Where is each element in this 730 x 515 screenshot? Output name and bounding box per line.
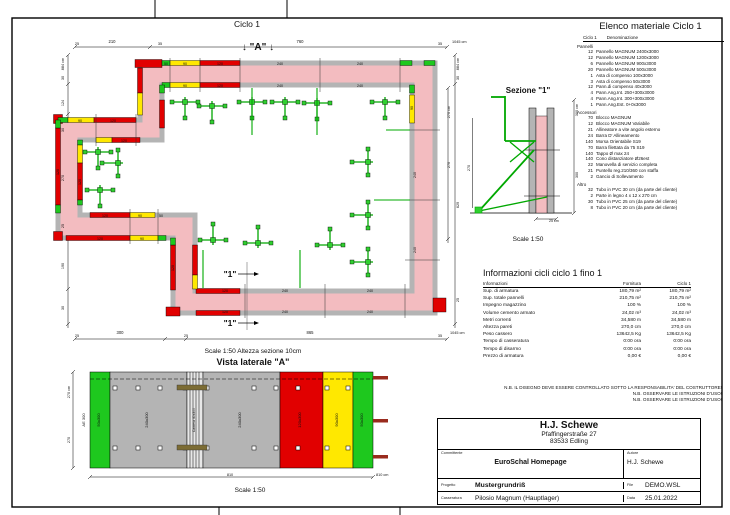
drawing-label: 240x300 xyxy=(144,412,149,428)
info-col-ciclo: Ciclo 1 xyxy=(641,281,691,286)
drawing-label: 240 xyxy=(357,84,363,88)
info-fornitura-value: 180,79 m² xyxy=(589,288,641,295)
autore-value: H.J. Schewe xyxy=(627,459,697,466)
material-qty: 8 xyxy=(577,205,593,211)
title-block-row-project: Progetto Mustergrundriß File DEMO.WSL xyxy=(438,478,700,491)
committente-value: EuroSchal Homepage xyxy=(441,459,620,466)
file-label: File xyxy=(627,483,645,487)
material-qty: 1 xyxy=(577,102,593,108)
cycle-info-table: Informazioni cicli ciclo 1 fino 1 Inform… xyxy=(483,268,691,360)
material-section-altro: Altro 32Tubo in PVC 30 cm (da parte del … xyxy=(577,182,724,211)
plan-scale-note: Scale 1:50 Altezza sezione 10cm xyxy=(205,348,302,355)
drawing-label: 90 xyxy=(140,237,144,241)
material-col-ciclo: Ciclo 1 xyxy=(583,35,597,40)
material-section-pannelli: Pannelli 12Pannello MAGNUM 2400x300012Pa… xyxy=(577,44,724,108)
material-col-denominazione: Denominazione xyxy=(607,35,638,40)
drawing-label: 25 xyxy=(75,42,79,46)
material-qty: 2 xyxy=(577,174,593,180)
drawing-label: 240 xyxy=(277,84,283,88)
title-block-company: H.J. Schewe Pfaffingerstraße 27 83533 Ed… xyxy=(438,419,700,449)
info-label: Volume cemento armato xyxy=(483,310,589,317)
info-fornitura-value: 270,0 cm xyxy=(589,324,641,331)
info-ciclo-value: 270,0 cm xyxy=(641,324,691,331)
material-list-title: Elenco materiale Ciclo 1 xyxy=(577,21,724,32)
info-ciclo-value: 0:00 ora xyxy=(641,346,691,353)
info-label: Prezzo di armatura xyxy=(483,353,589,360)
material-section-accessori: Accessori 70Blocco MAGNUM12Blocco MAGNUM… xyxy=(577,110,724,180)
material-list-header: Ciclo 1 Denominazione xyxy=(583,35,724,42)
info-fornitura-value: 0:00 ora xyxy=(589,346,641,353)
drawing-label: 50 xyxy=(159,214,163,218)
drawing-label: Camera 40x300 xyxy=(192,408,196,432)
title-block-row-formwork: Casseratura Pilosio Magnum (Hauptlager) … xyxy=(438,491,700,504)
company-name: H.J. Schewe xyxy=(438,421,700,431)
company-address1: Pfaffingerstraße 27 xyxy=(438,431,700,438)
data-label: Data xyxy=(627,496,645,500)
drawing-label: 240 xyxy=(282,289,288,293)
drawing-label: AE 300 xyxy=(81,413,86,427)
info-ciclo-value: 100 % xyxy=(641,302,691,309)
drawing-label: 120 xyxy=(121,139,127,143)
info-row: Tempo di disarmo0:00 ora0:00 ora xyxy=(483,346,691,353)
drawing-label: 270 cm xyxy=(67,386,71,398)
data-value: 25.01.2022 xyxy=(645,495,678,502)
marker-1-bottom: "1" xyxy=(224,318,237,328)
drawing-label: 120 xyxy=(222,289,228,293)
section-scale: Scale 1:50 xyxy=(513,236,544,243)
info-label: Tempo di disarmo xyxy=(483,346,589,353)
side-view-title: Vista laterale "A" xyxy=(217,357,290,367)
info-ciclo-value: 13642,5 Kg xyxy=(641,331,691,338)
info-row: Prezzo di armatura0,00 €0,00 € xyxy=(483,353,691,360)
casseratura-value: Pilosio Magnum (Hauptlager) xyxy=(475,495,559,502)
drawing-label: 30 xyxy=(456,76,460,80)
drawing-label: 120 xyxy=(56,169,60,175)
info-ciclo-value: 0:00 ora xyxy=(641,338,691,345)
drawing-label: 50 xyxy=(164,62,168,66)
drawing-label: 25 xyxy=(456,298,460,302)
drawing-label: 30 xyxy=(61,306,65,310)
info-row: Volume cemento armato24,02 m³24,02 m³ xyxy=(483,310,691,317)
title-block-row-client: Committente EuroSchal Homepage Autore H.… xyxy=(438,449,700,478)
info-fornitura-value: 13642,5 Kg xyxy=(589,331,641,338)
info-ciclo-value: 180,79 m² xyxy=(641,288,691,295)
material-items: 70Blocco MAGNUM12Blocco MAGNUM Variabile… xyxy=(577,115,724,180)
drawing-label: 120 xyxy=(171,265,175,271)
info-label: Metri correnti xyxy=(483,317,589,324)
casseratura-label: Casseratura xyxy=(441,496,475,500)
drawing-label: 120 xyxy=(78,179,82,185)
drawing-label: 90 xyxy=(183,84,187,88)
drawing-label: 90x300 xyxy=(334,413,339,427)
drawing-label: 810 cm xyxy=(376,473,388,477)
drawing-label: 884 cm xyxy=(456,58,460,70)
drawing-label: 35 xyxy=(438,334,442,338)
progetto-value: Mustergrundriß xyxy=(475,482,525,489)
drawing-label: 270 xyxy=(447,162,451,168)
material-row: 1Pann.Ang.Est. 0+0x3000 xyxy=(577,102,724,108)
progetto-label: Progetto xyxy=(441,483,475,487)
material-row: 8Tubo in PVC 20 cm (da parte del cliente… xyxy=(577,205,724,211)
drawing-label: 90 xyxy=(78,119,82,123)
drawing-label: 90 xyxy=(183,62,187,66)
drawing-label: 210 xyxy=(109,39,117,44)
drawing-label: 270 xyxy=(467,165,471,171)
drawing-label: 30 xyxy=(61,76,65,80)
joint-waler-top xyxy=(177,385,207,390)
cycle-info-header: Informazioni Fornitura Ciclo 1 xyxy=(483,281,691,288)
drawing-label: 120x300 xyxy=(297,412,302,428)
info-label: Tempo di casseratura xyxy=(483,338,589,345)
info-row: Sup. di armatura180,79 m²180,79 m² xyxy=(483,288,691,295)
drawing-label: 90 xyxy=(410,106,414,110)
info-fornitura-value: 0:00 ora xyxy=(589,338,641,345)
marker-a: ↓ "A" ↓ xyxy=(242,42,274,53)
drawing-label: 25 xyxy=(61,224,65,228)
side-panels xyxy=(90,372,373,468)
drawing-sheet: "1" "1" Ciclo 1 ↓ "A" ↓ Scale 1:50 Altez… xyxy=(0,0,730,515)
info-ciclo-value: 210,75 m² xyxy=(641,295,691,302)
cycle-info-title: Informazioni cicli ciclo 1 fino 1 xyxy=(483,268,691,278)
drawing-label: 120 xyxy=(217,62,223,66)
drawing-label: 240 xyxy=(413,172,417,178)
drawing-label: 270 cm xyxy=(447,106,451,118)
info-rows: Sup. di armatura180,79 m²180,79 m²Sup. t… xyxy=(483,288,691,360)
drawing-label: 270 xyxy=(67,437,71,443)
info-fornitura-value: 0,00 € xyxy=(589,353,641,360)
drawing-label: 629 xyxy=(456,202,460,208)
info-row: Metri correnti34,580 m34,580 m xyxy=(483,317,691,324)
autore-label: Autore xyxy=(627,451,697,455)
info-label: Peso cassero xyxy=(483,331,589,338)
drawing-label: 884 cm xyxy=(61,58,65,70)
info-ciclo-value: 24,02 m³ xyxy=(641,310,691,317)
drawing-label: 240 xyxy=(367,289,373,293)
warning-note: N.B. OSSERVARE LE ISTRUZIONI D'USO! xyxy=(420,397,722,403)
material-items: 12Pannello MAGNUM 2400x300012Pannello MA… xyxy=(577,49,724,108)
drawing-label: 90 xyxy=(138,214,142,218)
info-fornitura-value: 210,75 m² xyxy=(589,295,641,302)
plan-title: Ciclo 1 xyxy=(234,19,260,29)
drawing-label: 240 xyxy=(282,310,288,314)
drawing-label: 240 xyxy=(357,62,363,66)
drawing-label: 120 xyxy=(97,237,103,241)
drawing-label: 25 cm xyxy=(549,219,559,223)
material-name: Tubo in PVC 20 cm (da parte del cliente) xyxy=(596,205,724,211)
material-list: Elenco materiale Ciclo 1 Ciclo 1 Denomin… xyxy=(577,21,724,211)
info-col-label: Informazioni xyxy=(483,281,589,286)
drawing-label: 120 xyxy=(217,84,223,88)
drawing-label: 30 xyxy=(61,128,65,132)
info-label: Impegno magazzino xyxy=(483,302,589,309)
drawing-label: 240 xyxy=(367,310,373,314)
info-fornitura-value: 100 % xyxy=(589,302,641,309)
info-row: Peso cassero13642,5 Kg13642,5 Kg xyxy=(483,331,691,338)
warning-notes: N.B. IL DISEGNO DEVE ESSERE CONTROLLATO … xyxy=(420,385,722,402)
marker-1-top: "1" xyxy=(224,269,237,279)
info-ciclo-value: 0,00 € xyxy=(641,353,691,360)
drawing-label: 50x300 xyxy=(359,413,364,427)
drawing-label: 1045 cm xyxy=(452,40,467,44)
info-label: Sup. di armatura xyxy=(483,288,589,295)
drawing-label: 760 xyxy=(297,39,305,44)
committente-label: Committente xyxy=(441,451,620,455)
file-value: DEMO.WSL xyxy=(645,482,680,489)
drawing-label: 190 xyxy=(61,263,65,269)
info-col-fornitura: Fornitura xyxy=(589,281,641,286)
info-label: Sup. totale pannelli xyxy=(483,295,589,302)
drawing-label: 810 xyxy=(227,473,233,477)
info-label: Altezza pareti xyxy=(483,324,589,331)
drawing-label: 124 xyxy=(61,100,65,106)
material-items: 32Tubo in PVC 30 cm (da parte del client… xyxy=(577,187,724,211)
drawing-label: 35 xyxy=(438,42,442,46)
side-view-scale: Scale 1:50 xyxy=(235,487,266,494)
drawing-label: 300 xyxy=(117,330,125,335)
drawing-label: 120 xyxy=(222,310,228,314)
drawing-label: 270 xyxy=(61,175,65,181)
material-row: 2Gancio di Sollevamento xyxy=(577,174,724,180)
material-name: Pann.Ang.Est. 0+0x3000 xyxy=(596,102,724,108)
drawing-label: 25 xyxy=(184,334,188,338)
info-row: Sup. totale pannelli210,75 m²210,75 m² xyxy=(483,295,691,302)
drawing-label: 25 xyxy=(75,334,79,338)
drawing-label: 120 xyxy=(102,214,108,218)
material-name: Gancio di Sollevamento xyxy=(596,174,724,180)
info-row: Altezza pareti270,0 cm270,0 cm xyxy=(483,324,691,331)
drawing-label: 35 xyxy=(158,42,162,46)
drawing-label: 240 xyxy=(277,62,283,66)
drawing-label: 120 xyxy=(110,119,116,123)
joint-waler-bottom xyxy=(177,445,207,450)
drawing-label: 240x300 xyxy=(237,412,242,428)
company-address2: 83533 Edling xyxy=(438,438,700,445)
info-fornitura-value: 24,02 m³ xyxy=(589,310,641,317)
drawing-label: 50x300 xyxy=(96,413,101,427)
drawing-label: 1045 cm xyxy=(450,331,465,335)
section-title: Sezione "1" xyxy=(506,86,551,95)
info-fornitura-value: 34,580 m xyxy=(589,317,641,324)
title-block: H.J. Schewe Pfaffingerstraße 27 83533 Ed… xyxy=(437,418,701,505)
info-row: Impegno magazzino100 %100 % xyxy=(483,302,691,309)
info-ciclo-value: 34,580 m xyxy=(641,317,691,324)
info-row: Tempo di casseratura0:00 ora0:00 ora xyxy=(483,338,691,345)
drawing-label: 240 xyxy=(413,247,417,253)
drawing-label: 865 xyxy=(307,330,315,335)
